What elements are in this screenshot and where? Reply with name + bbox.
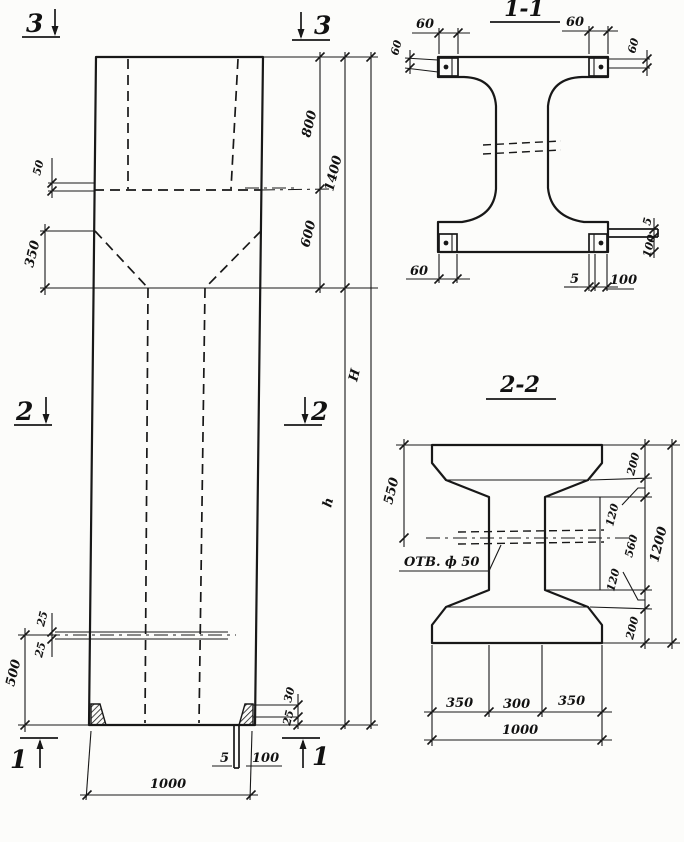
i-section-2-outline <box>432 445 602 643</box>
dim-120-top: 120 <box>603 502 621 528</box>
marker-1-right-label: 1 <box>312 742 329 771</box>
dim-200-top: 200 <box>624 451 642 478</box>
taper-hidden-left <box>95 231 148 288</box>
marker-2-left-label: 2 <box>15 397 33 426</box>
hole-2-bottom <box>458 542 604 544</box>
section-marker-3-right: 3 <box>292 11 331 40</box>
dim-60-side-right: 60 <box>625 36 641 54</box>
dim-800: 800 <box>299 109 320 139</box>
taper-hidden-right <box>205 231 261 288</box>
section-marker-1-left: 1 <box>10 738 58 774</box>
i-section-outline <box>438 57 608 252</box>
section-marker-2-right: 2 <box>284 397 328 426</box>
ext-1000-left <box>86 731 91 800</box>
section-marker-1-right: 1 <box>282 738 329 771</box>
dim-60-top-right: 60 <box>566 15 584 30</box>
web-hidden-left <box>145 288 148 723</box>
dim-5-bottom: 5 <box>570 272 579 287</box>
dim-plate-30: 30 <box>281 685 297 703</box>
section-1-1-title: 1-1 <box>504 0 544 22</box>
corner-plate-right <box>239 704 253 725</box>
marker-3-left-label: 3 <box>26 9 43 38</box>
web-hole-top <box>483 141 561 145</box>
dim-1000: 1000 <box>150 777 186 792</box>
dim-shelf-50: 50 <box>30 158 46 176</box>
dim-350-left: 350 <box>446 696 473 711</box>
dim-1200: 1200 <box>647 525 670 564</box>
ext-2-bflange <box>590 607 652 609</box>
dim-100-bottom: 100 <box>610 273 637 288</box>
corner-plate-bottom-left <box>439 234 457 252</box>
hole-label-leader <box>489 545 501 571</box>
dim-120-bottom: 120 <box>604 567 622 593</box>
dim-200-bottom: 200 <box>623 615 641 642</box>
corner-plate-top-left <box>439 58 458 76</box>
dim-hole-25-bottom: 25 <box>32 641 49 660</box>
corner-plate-top-right <box>589 58 608 76</box>
web-hole-bottom <box>483 150 561 154</box>
dim-60-top-left: 60 <box>416 17 434 32</box>
dim-taper-350: 350 <box>22 239 43 269</box>
dim-H: H <box>346 367 364 384</box>
marker-1-left-label: 1 <box>10 745 27 774</box>
socket-hidden-right <box>231 59 238 189</box>
dim-60-side-left: 60 <box>388 38 404 56</box>
section-2-2-title: 2-2 <box>499 372 540 398</box>
drawing-sheet: 50 350 25 25 500 30 <box>0 0 684 842</box>
dim-350-right: 350 <box>558 694 585 709</box>
dim-anchor-5: 5 <box>220 751 229 766</box>
section-2-2-view: 2-2 550 ОТВ. ф 50 200 120 560 <box>381 372 680 746</box>
dim-hole-25-top: 25 <box>34 610 51 629</box>
dim-300: 300 <box>503 697 530 712</box>
section-marker-2-left: 2 <box>14 397 52 426</box>
hole-diameter-label: ОТВ. ф 50 <box>404 555 479 570</box>
dim-500: 500 <box>3 658 24 688</box>
corner-plate-left <box>91 704 106 725</box>
dim-60-bottom: 60 <box>410 264 428 279</box>
web-hidden-right <box>199 288 205 723</box>
marker-3-right-label: 3 <box>314 11 331 40</box>
hole-2-top <box>458 530 604 532</box>
dim-1400: 1400 <box>322 154 345 193</box>
dim-550: 550 <box>381 476 402 506</box>
dim-h: h <box>320 496 337 509</box>
elevation-view: 50 350 25 25 500 30 <box>3 9 378 800</box>
column-outline <box>89 57 263 725</box>
dim-5-right: 5 <box>640 216 654 227</box>
section-1-1-view: 1-1 60 <box>388 0 658 292</box>
technical-drawing: 50 350 25 25 500 30 <box>0 0 684 842</box>
dim-560: 560 <box>622 533 640 559</box>
dim-2-1000: 1000 <box>502 723 538 738</box>
dim-anchor-100: 100 <box>252 751 279 766</box>
section-marker-3-left: 3 <box>22 9 60 38</box>
marker-2-right-label: 2 <box>310 397 328 426</box>
dim-600: 600 <box>298 219 319 249</box>
leader-120-bottom <box>623 572 645 600</box>
corner-plate-bottom-right <box>589 234 607 252</box>
